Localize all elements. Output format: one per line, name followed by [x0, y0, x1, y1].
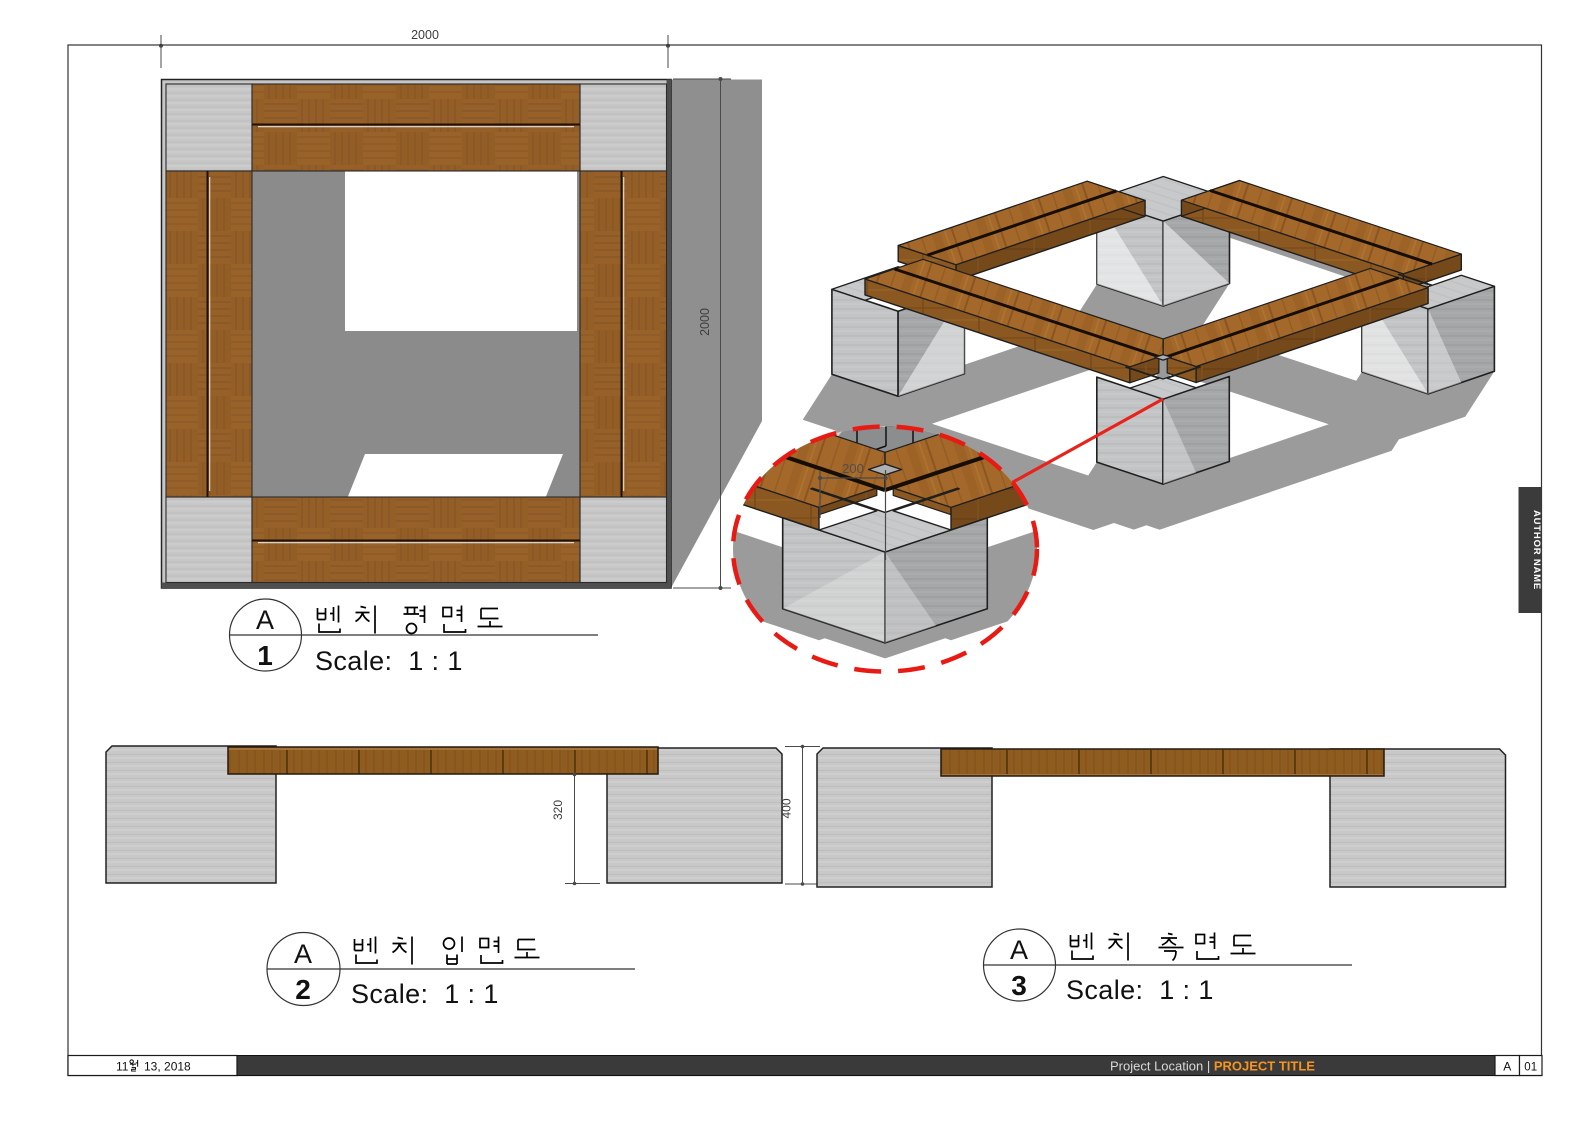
svg-text:400: 400 — [780, 798, 794, 818]
svg-text:A: A — [294, 939, 312, 969]
svg-text:320: 320 — [551, 800, 565, 820]
svg-text:A: A — [1010, 935, 1028, 965]
svg-text:2000: 2000 — [698, 308, 712, 336]
svg-text:1: 1 — [257, 640, 273, 671]
svg-text:A: A — [256, 605, 274, 635]
svg-text:2: 2 — [295, 974, 311, 1005]
svg-text:200: 200 — [842, 461, 864, 476]
svg-text:Scale: 1 : 1: Scale: 1 : 1 — [351, 979, 499, 1009]
svg-text:Scale: 1 : 1: Scale: 1 : 1 — [1066, 975, 1214, 1005]
svg-text:13, 2018: 13, 2018 — [144, 1060, 191, 1074]
svg-text:11: 11 — [116, 1060, 129, 1074]
svg-text:01: 01 — [1524, 1062, 1537, 1074]
svg-text:Project Location | PROJECT TIT: Project Location | PROJECT TITLE — [1110, 1059, 1315, 1074]
svg-text:Scale: 1 : 1: Scale: 1 : 1 — [315, 646, 463, 676]
svg-text:2000: 2000 — [411, 28, 439, 42]
svg-text:3: 3 — [1011, 970, 1027, 1001]
svg-text:A: A — [1503, 1060, 1511, 1074]
svg-text:AUTHOR NAME: AUTHOR NAME — [1531, 510, 1542, 590]
